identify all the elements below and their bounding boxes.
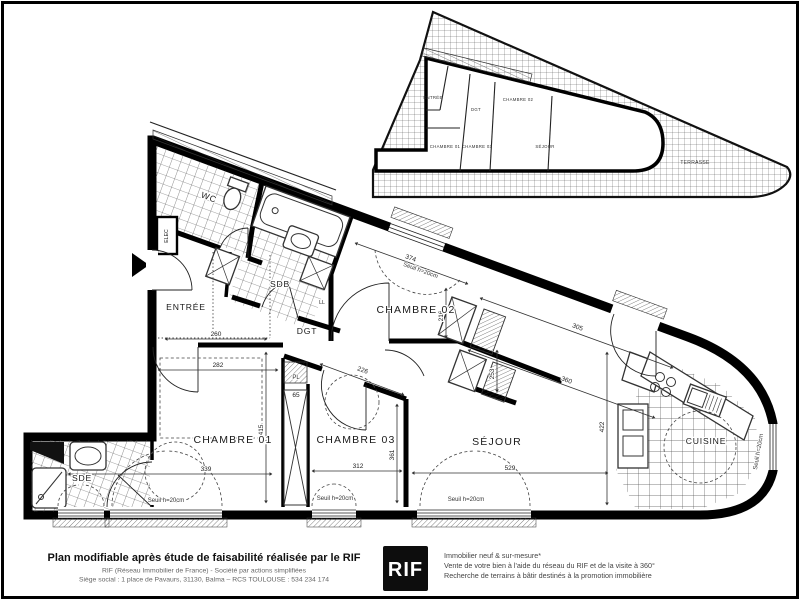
footer-company-line: RIF (Réseau Immobilier de France) - Soci… xyxy=(102,568,307,575)
inset-label-chambre02: CHAMBRE 02 xyxy=(503,97,534,102)
inset-label-terrasse: TERRASSE xyxy=(680,160,710,166)
inset-label-sejour: SÉJOUR xyxy=(535,144,554,149)
sill-label-ch01: Seuil h=20cm xyxy=(148,498,185,504)
ll-label: LL xyxy=(319,300,325,306)
rif-logo-text: RIF xyxy=(388,559,423,581)
dim-sejour-width: 529 xyxy=(505,465,516,472)
room-label-sdb: SDB xyxy=(270,279,290,289)
floor-plan-page: ENTRÉE DGT CHAMBRE 02 CHAMBRE 01 CHAMBRE… xyxy=(0,0,800,600)
dim-ch01-width: 282 xyxy=(213,362,224,369)
dim-sejour-height: 422 xyxy=(599,421,606,432)
footer-service-2: Vente de votre bien à l'aide du réseau d… xyxy=(444,561,655,570)
dim-ch03-width: 312 xyxy=(353,463,364,470)
room-label-chambre01: CHAMBRE 01 xyxy=(193,434,272,446)
inset-label-entree: ENTRÉE xyxy=(423,95,442,100)
room-label-dgt: DGT xyxy=(297,326,318,336)
dim-pl-width: 65 xyxy=(292,392,300,399)
dim-closet-height: 253 xyxy=(489,368,496,379)
dim-left-chain: 339 xyxy=(201,466,212,473)
room-label-sde: SDE xyxy=(72,473,92,483)
elec-cabinet: ELEC xyxy=(157,217,177,254)
window-cuisine-right xyxy=(767,424,781,470)
footer-address-line: Siège social : 1 place de Pavaurs, 31130… xyxy=(79,577,329,584)
dim-entree-width: 260 xyxy=(211,331,222,338)
room-label-entree: ENTRÉE xyxy=(166,302,206,312)
inset-label-chambre01: CHAMBRE 01 xyxy=(430,144,461,149)
room-label-cuisine: CUISINE xyxy=(686,436,726,446)
rif-logo: RIF xyxy=(383,546,428,591)
inset-label-chambre03: CHAMBRE 03 xyxy=(462,144,493,149)
entrance-opening xyxy=(146,250,158,290)
room-label-pl: PL xyxy=(292,375,300,381)
elec-label: ELEC xyxy=(164,229,170,243)
floor-plan-drawing: ENTRÉE DGT CHAMBRE 02 CHAMBRE 01 CHAMBRE… xyxy=(0,0,800,600)
sill-label-ch03: Seuil h=20cm xyxy=(317,496,354,502)
footer-headline: Plan modifiable après étude de faisabili… xyxy=(47,552,360,564)
sill-label-sejour: Seuil h=20cm xyxy=(448,497,485,503)
room-label-chambre03: CHAMBRE 03 xyxy=(316,434,395,446)
dim-ch03-height: 361 xyxy=(389,449,396,460)
room-label-chambre02: CHAMBRE 02 xyxy=(376,304,455,316)
inset-label-dgt: DGT xyxy=(471,107,481,112)
room-label-sejour: SÉJOUR xyxy=(472,435,522,448)
footer-service-3: Recherche de terrains à bâtir destinés à… xyxy=(444,571,652,580)
footer-service-1: Immobilier neuf & sur-mesure* xyxy=(444,551,541,560)
